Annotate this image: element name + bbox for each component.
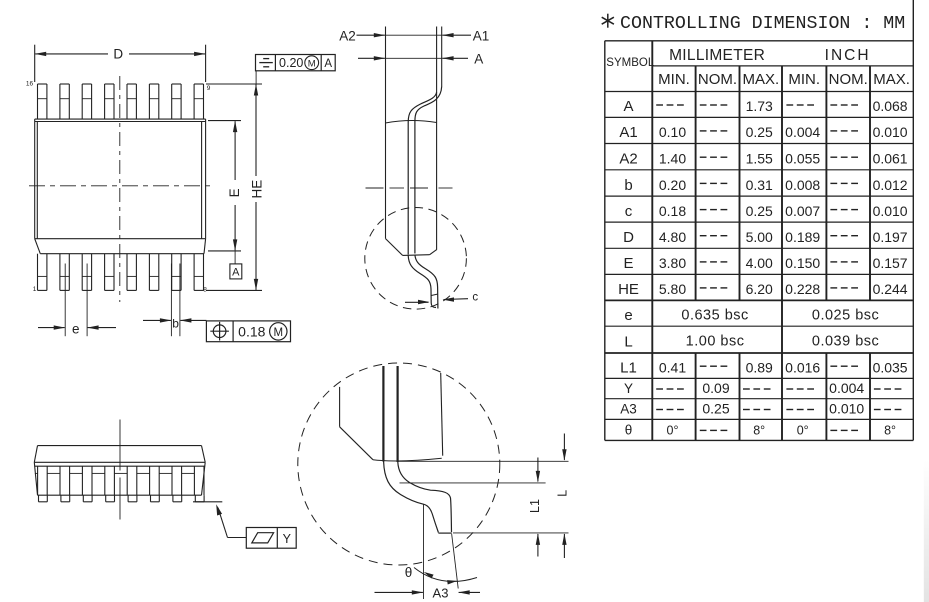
svg-text:0.41: 0.41 (659, 360, 686, 376)
svg-text:A: A (324, 58, 332, 70)
svg-text:0.055: 0.055 (785, 151, 820, 167)
svg-text:E: E (227, 188, 242, 197)
svg-text:0.635 bsc: 0.635 bsc (681, 307, 748, 323)
svg-text:MAX.: MAX. (742, 71, 779, 88)
svg-text:e: e (72, 322, 80, 337)
svg-text:0.004: 0.004 (829, 380, 864, 396)
svg-text:1.73: 1.73 (746, 98, 773, 114)
svg-text:3.80: 3.80 (659, 255, 686, 271)
svg-text:NOM.: NOM. (698, 71, 737, 88)
svg-text:0.25: 0.25 (702, 401, 729, 417)
svg-text:0.09: 0.09 (702, 380, 729, 396)
svg-text:0.016: 0.016 (785, 360, 820, 376)
svg-text:SYMBOL: SYMBOL (606, 57, 655, 69)
svg-text:9: 9 (207, 85, 211, 92)
svg-text:1: 1 (33, 286, 37, 293)
svg-text:0.010: 0.010 (829, 401, 864, 417)
svg-text:0.20: 0.20 (659, 177, 686, 193)
svg-text:Y: Y (283, 532, 292, 546)
svg-text:A1: A1 (619, 124, 637, 141)
svg-text:L: L (555, 490, 569, 497)
svg-text:0.068: 0.068 (873, 98, 908, 114)
svg-text:4.00: 4.00 (746, 255, 773, 271)
svg-text:M: M (308, 59, 316, 70)
svg-text:1.00 bsc: 1.00 bsc (686, 334, 745, 350)
svg-text:MAX.: MAX. (873, 71, 910, 88)
svg-text:A: A (232, 267, 240, 279)
svg-text:0.008: 0.008 (785, 177, 820, 193)
svg-text:0.89: 0.89 (746, 360, 773, 376)
svg-text:L1: L1 (528, 499, 542, 513)
svg-text:0.010: 0.010 (873, 203, 908, 219)
svg-text:0°: 0° (667, 424, 679, 438)
svg-text:0.10: 0.10 (659, 124, 686, 140)
svg-text:0.228: 0.228 (785, 281, 820, 297)
svg-text:θ: θ (625, 423, 633, 438)
svg-text:b: b (624, 177, 632, 194)
svg-text:0.25: 0.25 (746, 203, 773, 219)
svg-text:0.31: 0.31 (746, 177, 773, 193)
svg-text:0.039 bsc: 0.039 bsc (812, 334, 879, 350)
svg-text:0°: 0° (797, 424, 809, 438)
svg-text:A3: A3 (620, 402, 637, 417)
svg-text:E: E (623, 255, 633, 272)
svg-text:b: b (172, 317, 179, 331)
svg-text:HE: HE (618, 281, 639, 298)
svg-text:6.20: 6.20 (746, 281, 773, 297)
svg-text:0.25: 0.25 (746, 124, 773, 140)
svg-text:A: A (474, 52, 483, 67)
svg-text:0.18: 0.18 (238, 323, 265, 339)
svg-text:A2: A2 (339, 29, 356, 44)
svg-text:0.20: 0.20 (279, 56, 303, 70)
svg-text:8°: 8° (753, 424, 765, 438)
svg-text:5.80: 5.80 (659, 281, 686, 297)
svg-text:NOM.: NOM. (829, 71, 868, 88)
svg-text:M: M (274, 327, 284, 339)
svg-text:16: 16 (26, 81, 34, 88)
svg-text:0.035: 0.035 (873, 360, 908, 376)
svg-text:L1: L1 (620, 360, 637, 377)
svg-text:A3: A3 (433, 586, 449, 601)
svg-text:8°: 8° (884, 424, 896, 438)
svg-text:A: A (623, 98, 633, 115)
svg-text:MILLIMETER: MILLIMETER (669, 47, 765, 64)
svg-text:0.18: 0.18 (659, 203, 686, 219)
svg-text:D: D (113, 47, 123, 62)
svg-text:0.061: 0.061 (873, 151, 908, 167)
svg-text:0.004: 0.004 (785, 124, 820, 140)
svg-text:MIN.: MIN. (788, 71, 820, 88)
svg-text:0.025 bsc: 0.025 bsc (812, 307, 879, 323)
svg-text:1.55: 1.55 (746, 151, 773, 167)
svg-text:θ: θ (405, 565, 413, 580)
svg-text:L: L (624, 333, 632, 350)
svg-text:1.40: 1.40 (659, 151, 686, 167)
svg-text:c: c (625, 203, 633, 220)
svg-text:5.00: 5.00 (746, 229, 773, 245)
svg-text:CONTROLLING DIMENSION : MM: CONTROLLING DIMENSION : MM (620, 14, 905, 34)
svg-text:A1: A1 (473, 29, 490, 44)
svg-text:e: e (624, 307, 632, 324)
svg-text:Y: Y (624, 381, 633, 396)
svg-text:0.197: 0.197 (873, 229, 908, 245)
svg-text:0.157: 0.157 (873, 255, 908, 271)
svg-text:c: c (472, 292, 478, 304)
svg-text:4.80: 4.80 (659, 229, 686, 245)
svg-text:0.012: 0.012 (873, 177, 908, 193)
svg-text:A2: A2 (619, 151, 637, 168)
svg-text:0.189: 0.189 (785, 229, 820, 245)
svg-text:0.010: 0.010 (873, 124, 908, 140)
svg-text:0.244: 0.244 (873, 281, 908, 297)
svg-text:HE: HE (250, 180, 265, 199)
svg-text:D: D (623, 229, 634, 246)
svg-text:0.150: 0.150 (785, 255, 820, 271)
svg-text:0.007: 0.007 (785, 203, 820, 219)
svg-text:INCH: INCH (825, 47, 871, 64)
svg-text:MIN.: MIN. (658, 71, 690, 88)
